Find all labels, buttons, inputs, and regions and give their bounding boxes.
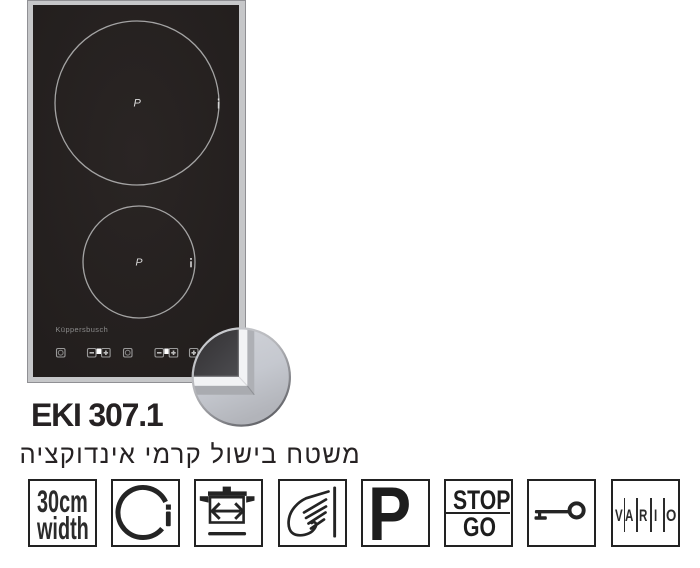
svg-text:P: P — [134, 98, 142, 110]
svg-text:Küppersbusch: Küppersbusch — [56, 325, 109, 334]
svg-text:P: P — [136, 257, 143, 269]
